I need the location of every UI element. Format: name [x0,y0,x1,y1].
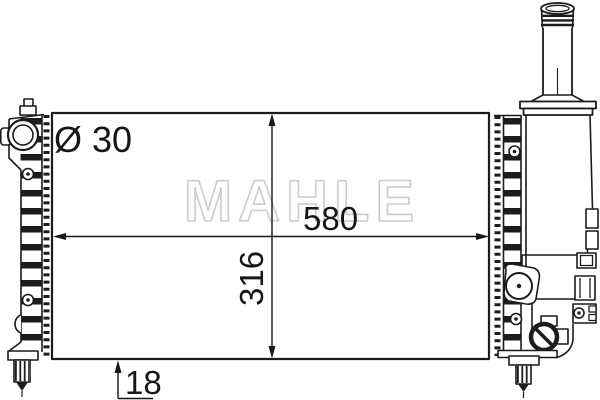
watermark-text: MAHLE [184,169,420,234]
dim-label-port-diameter: Ø 30 [54,119,132,160]
drawing-canvas: MAHLE [0,0,600,400]
left-tank [1,99,47,397]
radiator-technical-drawing: MAHLE [0,0,600,400]
dimension-depth: 18 [115,361,162,400]
dimension-port-diameter: Ø 30 [54,119,132,160]
drain-plug-left [8,342,38,397]
mount-clip [586,231,598,249]
drain-petcock-right [509,356,539,398]
filler-neck [520,3,596,115]
dim-label-depth: 18 [125,364,162,400]
dim-label-width: 580 [303,200,358,237]
dim-label-height: 316 [233,251,270,306]
mount-clip [586,209,598,228]
connector-tabs [573,253,596,323]
